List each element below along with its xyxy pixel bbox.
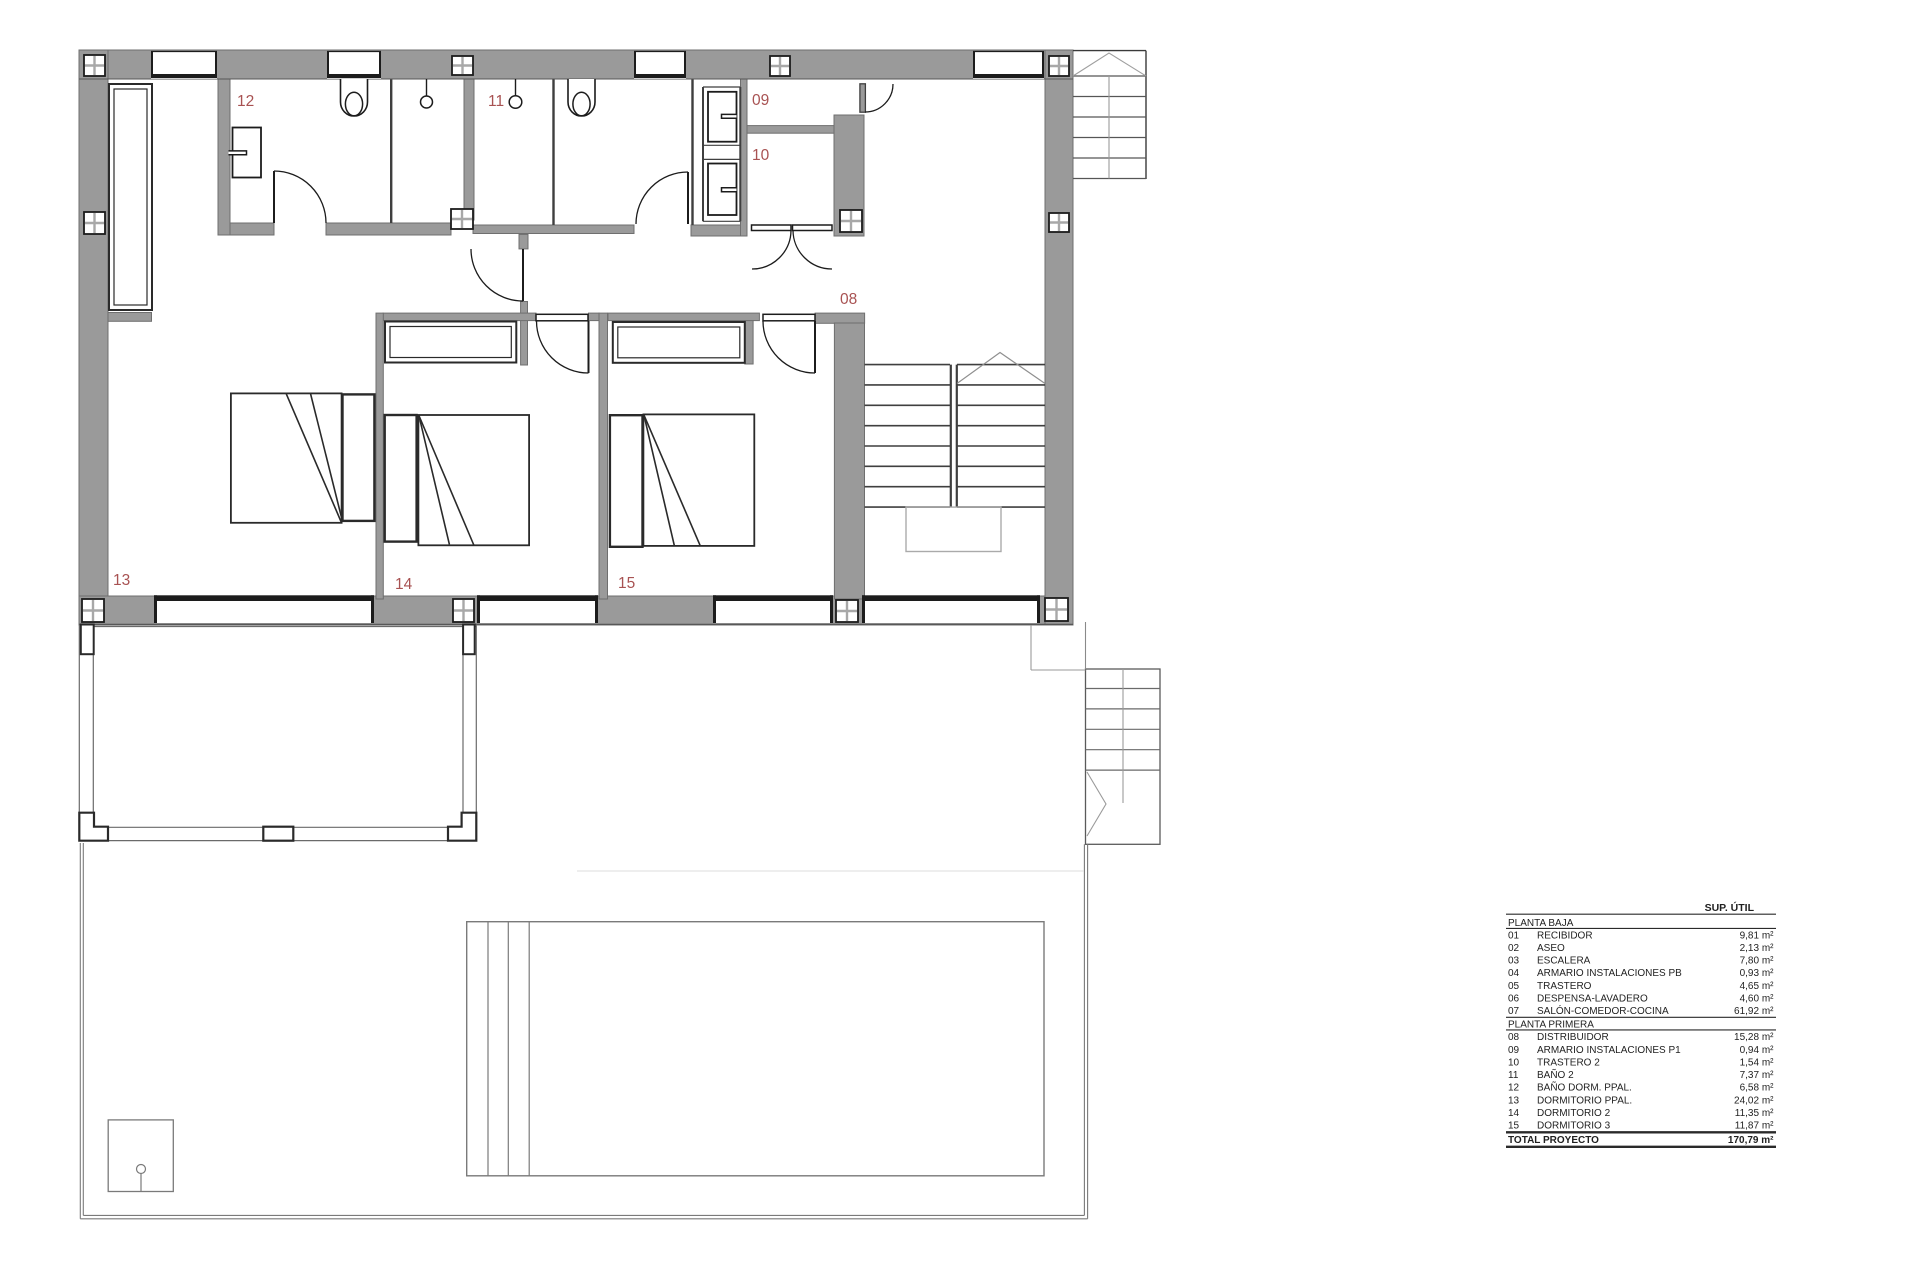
- svg-text:DORMITORIO 3: DORMITORIO 3: [1537, 1121, 1611, 1132]
- svg-text:0,93 m²: 0,93 m²: [1740, 968, 1775, 979]
- svg-text:PLANTA BAJA: PLANTA BAJA: [1508, 918, 1574, 929]
- svg-text:11,35 m²: 11,35 m²: [1735, 1108, 1774, 1119]
- svg-text:7,80 m²: 7,80 m²: [1740, 956, 1775, 967]
- svg-text:PLANTA PRIMERA: PLANTA PRIMERA: [1508, 1019, 1594, 1030]
- svg-text:10: 10: [1508, 1058, 1520, 1069]
- svg-text:09: 09: [1508, 1045, 1520, 1056]
- svg-text:09: 09: [752, 92, 769, 109]
- svg-text:10: 10: [752, 147, 770, 164]
- svg-text:DISTRIBUIDOR: DISTRIBUIDOR: [1537, 1032, 1609, 1043]
- svg-text:15: 15: [618, 575, 635, 592]
- svg-text:14: 14: [1508, 1108, 1520, 1119]
- svg-text:11: 11: [488, 93, 504, 110]
- svg-text:15,28 m²: 15,28 m²: [1734, 1032, 1774, 1043]
- svg-text:08: 08: [840, 291, 857, 308]
- svg-text:01: 01: [1508, 930, 1520, 941]
- svg-text:0,94 m²: 0,94 m²: [1740, 1045, 1775, 1056]
- svg-text:1,54 m²: 1,54 m²: [1740, 1058, 1775, 1069]
- svg-text:14: 14: [395, 576, 413, 593]
- svg-text:4,60 m²: 4,60 m²: [1740, 993, 1775, 1004]
- svg-text:6,58 m²: 6,58 m²: [1740, 1083, 1775, 1094]
- svg-text:TRASTERO: TRASTERO: [1537, 981, 1592, 992]
- svg-text:13: 13: [113, 572, 130, 589]
- svg-text:24,02 m²: 24,02 m²: [1734, 1095, 1774, 1106]
- svg-text:11: 11: [1508, 1070, 1519, 1081]
- svg-text:4,65 m²: 4,65 m²: [1740, 981, 1775, 992]
- svg-text:BAÑO 2: BAÑO 2: [1537, 1068, 1574, 1081]
- svg-text:170,79 m²: 170,79 m²: [1728, 1135, 1774, 1146]
- svg-text:02: 02: [1508, 943, 1520, 954]
- svg-text:DESPENSA-LAVADERO: DESPENSA-LAVADERO: [1537, 993, 1648, 1004]
- svg-text:7,37 m²: 7,37 m²: [1740, 1070, 1775, 1081]
- svg-text:DORMITORIO 2: DORMITORIO 2: [1537, 1108, 1611, 1119]
- svg-text:13: 13: [1508, 1095, 1520, 1106]
- svg-text:11,87 m²: 11,87 m²: [1735, 1121, 1774, 1132]
- svg-text:2,13 m²: 2,13 m²: [1740, 943, 1775, 954]
- svg-text:TRASTERO 2: TRASTERO 2: [1537, 1058, 1600, 1069]
- svg-text:SUP. ÚTIL: SUP. ÚTIL: [1705, 901, 1755, 914]
- svg-text:03: 03: [1508, 956, 1520, 967]
- svg-text:ARMARIO INSTALACIONES PB: ARMARIO INSTALACIONES PB: [1537, 968, 1682, 979]
- svg-text:TOTAL PROYECTO: TOTAL PROYECTO: [1508, 1135, 1599, 1146]
- svg-text:05: 05: [1508, 981, 1520, 992]
- svg-text:06: 06: [1508, 993, 1520, 1004]
- svg-text:RECIBIDOR: RECIBIDOR: [1537, 930, 1593, 941]
- svg-text:61,92 m²: 61,92 m²: [1734, 1006, 1774, 1017]
- svg-text:12: 12: [1508, 1083, 1520, 1094]
- svg-text:BAÑO DORM. PPAL.: BAÑO DORM. PPAL.: [1537, 1081, 1632, 1094]
- svg-text:ESCALERA: ESCALERA: [1537, 956, 1591, 967]
- svg-text:SALÓN-COMEDOR-COCINA: SALÓN-COMEDOR-COCINA: [1537, 1004, 1669, 1017]
- svg-text:DORMITORIO PPAL.: DORMITORIO PPAL.: [1537, 1095, 1632, 1106]
- svg-text:ASEO: ASEO: [1537, 943, 1565, 954]
- svg-text:12: 12: [237, 93, 254, 110]
- svg-text:04: 04: [1508, 968, 1520, 979]
- svg-text:08: 08: [1508, 1032, 1520, 1043]
- svg-text:15: 15: [1508, 1121, 1520, 1132]
- svg-text:ARMARIO INSTALACIONES P1: ARMARIO INSTALACIONES P1: [1537, 1045, 1681, 1056]
- svg-text:07: 07: [1508, 1006, 1520, 1017]
- svg-text:9,81 m²: 9,81 m²: [1740, 930, 1775, 941]
